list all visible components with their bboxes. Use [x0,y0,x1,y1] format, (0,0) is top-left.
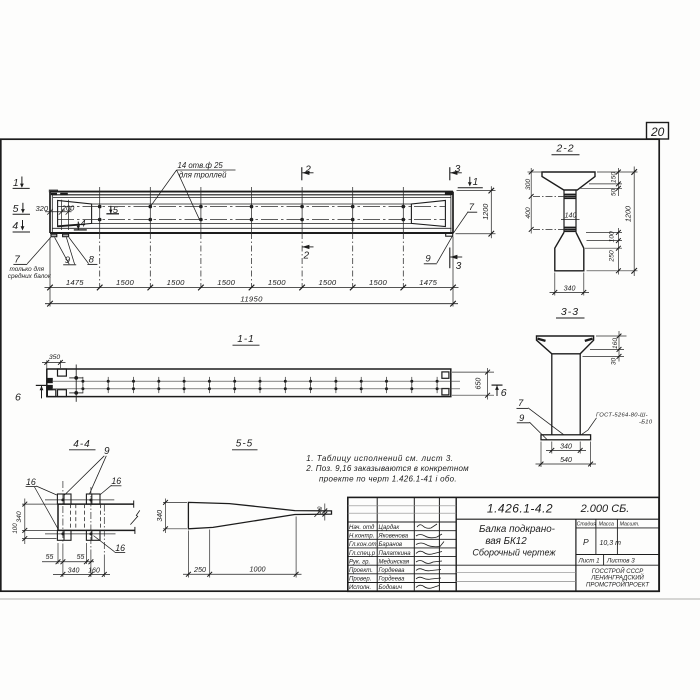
svg-text:350: 350 [49,354,61,361]
svg-text:6: 6 [501,387,507,399]
svg-text:Гл.спец.р: Гл.спец.р [349,551,376,557]
svg-text:7: 7 [469,202,475,213]
svg-text:Яковенова: Яковенова [378,534,409,540]
svg-text:2.000 СБ.: 2.000 СБ. [580,503,630,515]
svg-text:средних балок: средних балок [8,272,52,280]
svg-text:1500: 1500 [167,278,185,287]
svg-text:100: 100 [609,231,616,242]
svg-text:5-5: 5-5 [236,439,253,450]
svg-text:1. Таблицу исполнений см. ли: 1. Таблицу исполнений см. лист 3. [306,454,453,463]
svg-text:Провер.: Провер. [349,577,371,583]
svg-text:2: 2 [304,164,311,175]
svg-text:40: 40 [317,506,324,513]
svg-text:9: 9 [519,413,525,424]
svg-text:Проект.: Проект. [349,568,373,574]
svg-text:Мединская: Мединская [379,559,410,565]
svg-text:3: 3 [455,164,461,175]
svg-text:1475: 1475 [66,278,84,287]
svg-text:ГОССТРОЙ СССР: ГОССТРОЙ СССР [592,567,644,575]
svg-text:Р: Р [583,537,589,547]
svg-text:16: 16 [26,477,36,487]
svg-text:1.426.1-4.2: 1.426.1-4.2 [487,501,553,515]
svg-text:Рук. гр.: Рук. гр. [349,559,370,565]
svg-text:ГОСТ-5264-80-Ш-: ГОСТ-5264-80-Ш- [596,413,648,419]
svg-text:55: 55 [77,554,85,561]
svg-text:Бодович: Бодович [379,585,402,591]
svg-text:9: 9 [104,446,110,457]
svg-text:14 отв.ф 25: 14 отв.ф 25 [178,161,224,170]
svg-text:540: 540 [560,456,572,464]
svg-text:650: 650 [476,378,483,390]
svg-text:5: 5 [113,205,119,216]
svg-text:Цардак: Цардак [379,525,401,531]
svg-text:250: 250 [193,565,206,574]
svg-text:340: 340 [68,568,80,575]
svg-text:4-4: 4-4 [73,439,90,450]
svg-text:160: 160 [88,568,100,575]
svg-text:10,3 т: 10,3 т [600,540,622,547]
svg-text:9: 9 [65,255,71,266]
svg-text:Гордеева: Гордеева [379,577,406,583]
svg-text:50: 50 [611,189,618,197]
svg-text:ЛЕНИНГРАДСКИЙ: ЛЕНИНГРАДСКИЙ [590,574,644,582]
svg-text:300: 300 [525,179,532,191]
svg-text:340: 340 [560,443,572,451]
svg-text:3: 3 [456,261,462,272]
svg-text:6: 6 [15,392,21,404]
svg-text:340: 340 [564,285,576,293]
svg-text:140: 140 [565,213,577,220]
svg-text:1500: 1500 [116,278,134,287]
svg-text:Масшт.: Масшт. [620,522,640,528]
svg-text:Листов 3: Листов 3 [606,558,635,565]
svg-text:2-2: 2-2 [555,143,574,155]
svg-text:1-1: 1-1 [237,334,254,345]
svg-text:Баранов: Баранов [379,542,403,548]
svg-text:20: 20 [650,125,665,139]
svg-text:200: 200 [61,204,75,213]
svg-text:8: 8 [89,254,95,265]
svg-text:Масса: Масса [599,522,614,528]
svg-text:1000: 1000 [250,565,266,574]
svg-text:2: 2 [303,251,310,262]
svg-text:Гл.кон.от: Гл.кон.от [349,542,377,548]
svg-text:Стадия: Стадия [577,522,597,528]
svg-text:вая БК12: вая БК12 [485,536,527,547]
svg-text:Палаткина: Палаткина [379,551,412,557]
svg-text:160: 160 [612,338,619,349]
svg-text:1200: 1200 [624,206,633,222]
svg-text:Н.контр.: Н.контр. [349,534,374,540]
svg-text:Балка подкрано-: Балка подкрано- [479,524,556,535]
svg-text:30: 30 [611,358,618,366]
svg-text:Нач. отд: Нач. отд [349,525,375,531]
svg-text:1200: 1200 [481,204,490,220]
svg-text:1500: 1500 [318,278,336,287]
svg-text:250: 250 [609,250,616,263]
svg-text:1500: 1500 [369,278,387,287]
svg-text:для троллей: для троллей [179,171,227,180]
svg-text:340: 340 [16,511,23,523]
svg-text:320: 320 [36,204,49,213]
svg-text:11950: 11950 [240,294,263,303]
svg-text:Сборочный чертеж: Сборочный чертеж [472,547,556,557]
svg-text:Гордеева: Гордеева [379,568,406,574]
svg-text:9: 9 [425,254,431,265]
svg-text:150: 150 [611,172,618,183]
svg-text:1: 1 [13,178,19,189]
svg-text:1: 1 [473,177,479,188]
svg-text:1500: 1500 [217,278,235,287]
svg-text:проекте по черт 1.426.1-41 і о: проекте по черт 1.426.1-41 і обо. [319,474,457,483]
svg-text:16: 16 [111,476,121,486]
svg-text:4: 4 [80,219,85,230]
svg-text:400: 400 [525,207,532,219]
svg-text:ПРОМСТРОЙПРОЕКТ: ПРОМСТРОЙПРОЕКТ [586,580,650,588]
svg-text:1475: 1475 [419,278,437,287]
svg-text:340: 340 [157,510,164,522]
svg-text:4: 4 [12,220,18,232]
svg-text:5: 5 [13,203,19,215]
svg-text:Исполн.: Исполн. [349,585,371,591]
svg-text:100: 100 [12,523,19,534]
svg-text:-Б10: -Б10 [639,420,653,426]
svg-text:3-3: 3-3 [561,306,579,318]
svg-text:55: 55 [46,554,54,561]
svg-text:2. Поз. 9,16 заказываются в ко: 2. Поз. 9,16 заказываются в конкретном [305,464,469,473]
svg-text:Лист 1: Лист 1 [578,558,600,565]
svg-text:16: 16 [115,543,125,553]
svg-text:7: 7 [518,398,524,409]
svg-text:1500: 1500 [268,278,286,287]
